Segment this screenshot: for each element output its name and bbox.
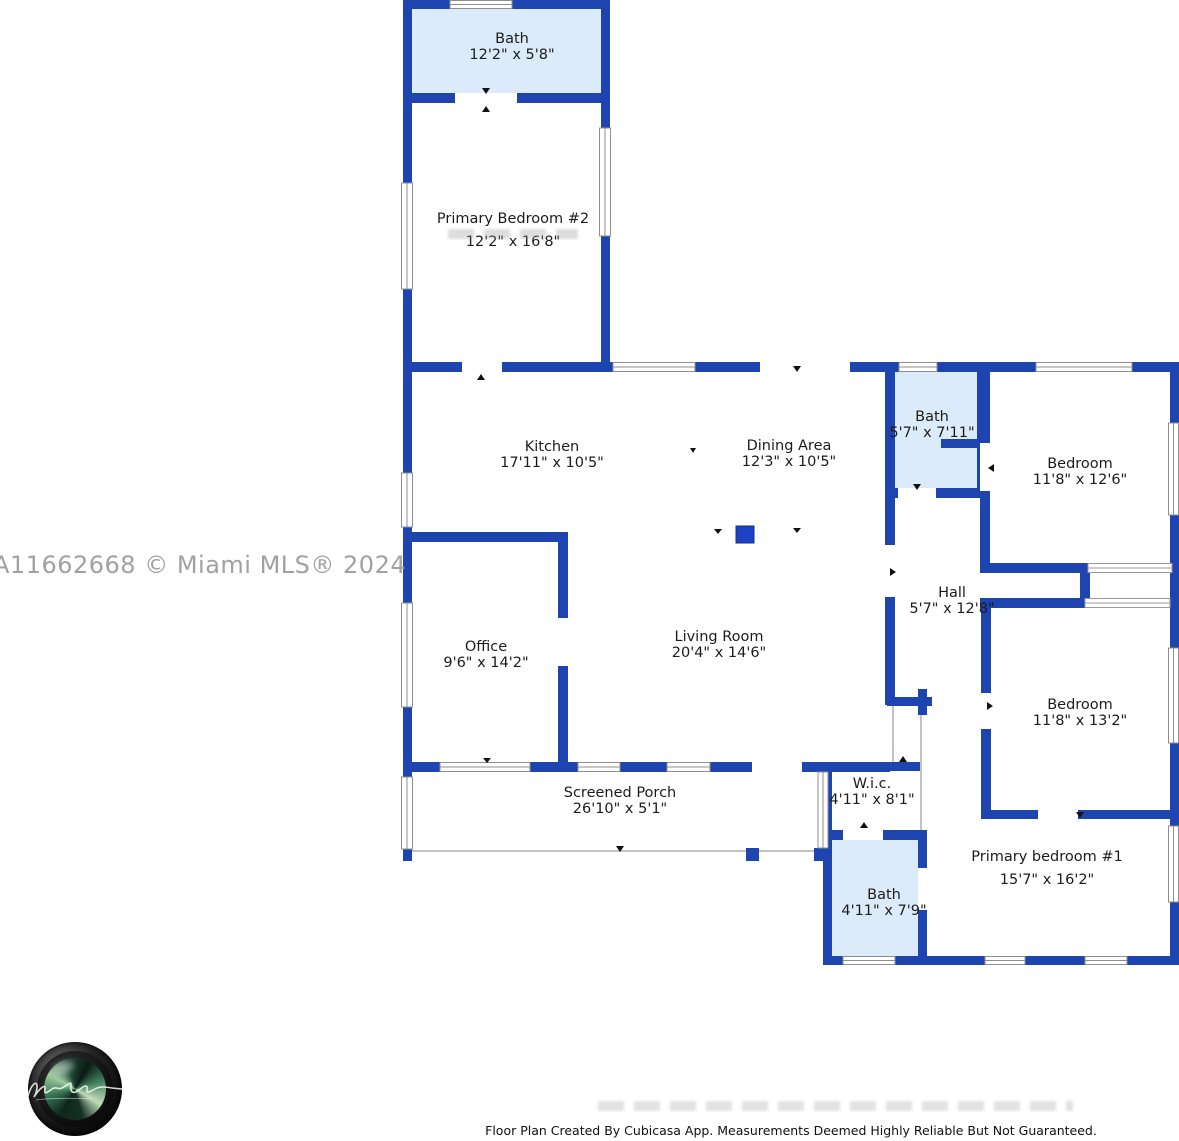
room-dims: 4'11" x 7'9" <box>841 903 926 919</box>
room-label-living-room: Living Room 20'4" x 14'6" <box>672 629 766 661</box>
room-dims: 11'8" x 13'2" <box>1033 713 1127 729</box>
room-name: Office <box>443 639 528 655</box>
room-label-bath-top: Bath 12'2" x 5'8" <box>469 31 554 63</box>
room-dims: 20'4" x 14'6" <box>672 645 766 661</box>
room-label-primary-bedroom-1: Primary bedroom #1 15'7" x 16'2" <box>971 849 1122 888</box>
room-dims: 26'10" x 5'1" <box>564 801 677 817</box>
room-name: Dining Area <box>742 438 836 454</box>
room-name: Bedroom <box>1033 456 1127 472</box>
room-dims: 5'7" x 12'8" <box>909 601 994 617</box>
room-label-dining-area: Dining Area 12'3" x 10'5" <box>742 438 836 470</box>
floorplan-disclaimer: Floor Plan Created By Cubicasa App. Meas… <box>403 1123 1179 1138</box>
room-name: Primary bedroom #1 <box>971 849 1122 865</box>
room-name: Bedroom <box>1033 697 1127 713</box>
room-label-wic: W.i.c. 4'11" x 8'1" <box>829 776 914 808</box>
room-label-bedroom-upper-right: Bedroom 11'8" x 12'6" <box>1033 456 1127 488</box>
room-label-hall: Hall 5'7" x 12'8" <box>909 585 994 617</box>
room-name: Kitchen <box>500 439 604 455</box>
photographer-logo <box>28 1042 122 1136</box>
room-label-bath-bottom: Bath 4'11" x 7'9" <box>841 887 926 919</box>
structural-column <box>736 526 754 543</box>
room-label-bedroom-lower-right: Bedroom 11'8" x 13'2" <box>1033 697 1127 729</box>
room-dims: 17'11" x 10'5" <box>500 455 604 471</box>
room-name: Primary Bedroom #2 <box>437 211 589 227</box>
room-label-kitchen: Kitchen 17'11" x 10'5" <box>500 439 604 471</box>
room-dims: 4'11" x 8'1" <box>829 792 914 808</box>
room-name: Bath <box>889 409 974 425</box>
room-name: Living Room <box>672 629 766 645</box>
faint-watermark-smudge <box>598 1101 1073 1111</box>
faint-watermark-smudge <box>448 229 578 239</box>
room-name: Bath <box>841 887 926 903</box>
room-dims: 12'2" x 5'8" <box>469 47 554 63</box>
room-name: Bath <box>469 31 554 47</box>
room-label-screened-porch: Screened Porch 26'10" x 5'1" <box>564 785 677 817</box>
room-name: W.i.c. <box>829 776 914 792</box>
room-label-bath-middle: Bath 5'7" x 7'11" <box>889 409 974 441</box>
signature-icon <box>22 1072 128 1106</box>
room-dims: 11'8" x 12'6" <box>1033 472 1127 488</box>
floor-plan-page: Bath 12'2" x 5'8" Primary Bedroom #2 12'… <box>0 0 1179 1141</box>
room-name: Hall <box>909 585 994 601</box>
room-label-office: Office 9'6" x 14'2" <box>443 639 528 671</box>
room-dims: 12'3" x 10'5" <box>742 454 836 470</box>
room-name: Screened Porch <box>564 785 677 801</box>
mls-watermark: A11662668 © Miami MLS® 2024 <box>0 551 406 579</box>
room-dims: 15'7" x 16'2" <box>971 872 1122 888</box>
bath-room-fills <box>407 4 982 958</box>
room-dims: 9'6" x 14'2" <box>443 655 528 671</box>
room-dims: 5'7" x 7'11" <box>889 425 974 441</box>
